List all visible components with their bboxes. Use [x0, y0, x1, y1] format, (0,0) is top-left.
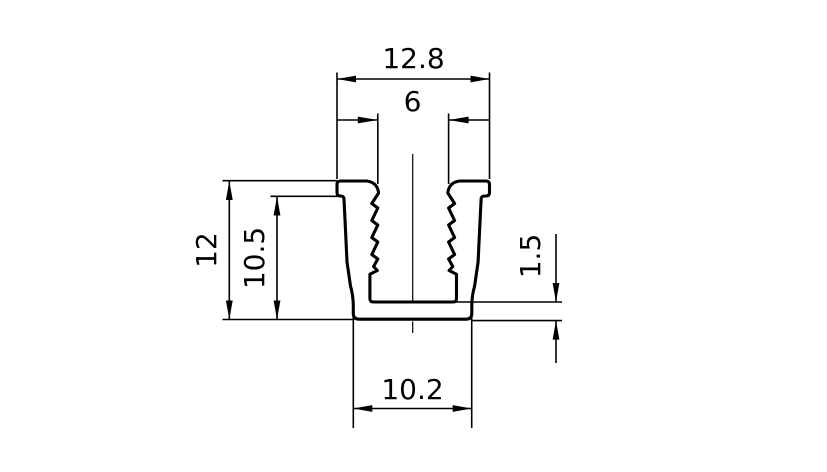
label-outer-width: 12.8	[382, 42, 444, 75]
drawing-canvas: 12.8 6 12 10.5 1.5 10.2	[0, 0, 827, 472]
label-base-width: 10.2	[381, 373, 443, 406]
label-slot-width: 6	[404, 85, 422, 118]
technical-drawing: 12.8 6 12 10.5 1.5 10.2	[0, 0, 827, 472]
label-base-thickness: 1.5	[514, 234, 547, 279]
label-overall-height: 12	[190, 232, 223, 268]
label-inner-height: 10.5	[238, 227, 271, 289]
